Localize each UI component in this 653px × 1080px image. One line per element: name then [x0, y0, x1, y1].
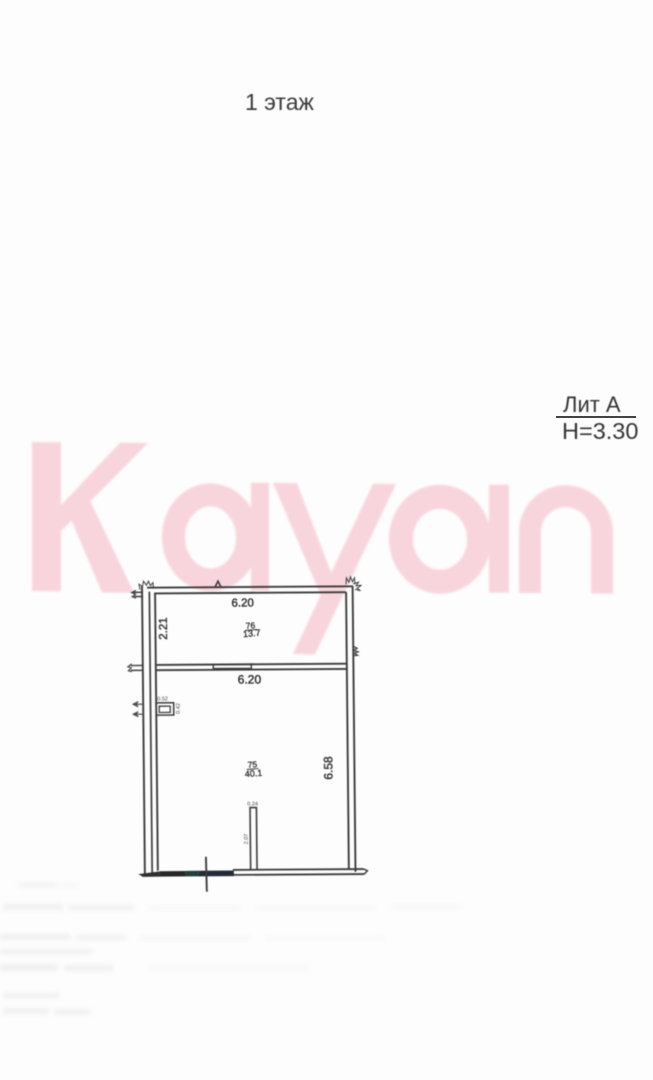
svg-text:13.7: 13.7	[242, 628, 260, 640]
svg-text:2.21: 2.21	[158, 617, 170, 639]
svg-text:40.1: 40.1	[244, 768, 262, 779]
svg-text:6.58: 6.58	[321, 756, 335, 780]
svg-text:0.24: 0.24	[247, 801, 258, 807]
svg-text:6.20: 6.20	[231, 597, 254, 609]
svg-text:0.52: 0.52	[157, 697, 168, 703]
svg-text:6.20: 6.20	[238, 672, 262, 686]
svg-text:0.42: 0.42	[176, 703, 182, 714]
svg-text:2.07: 2.07	[244, 834, 250, 845]
